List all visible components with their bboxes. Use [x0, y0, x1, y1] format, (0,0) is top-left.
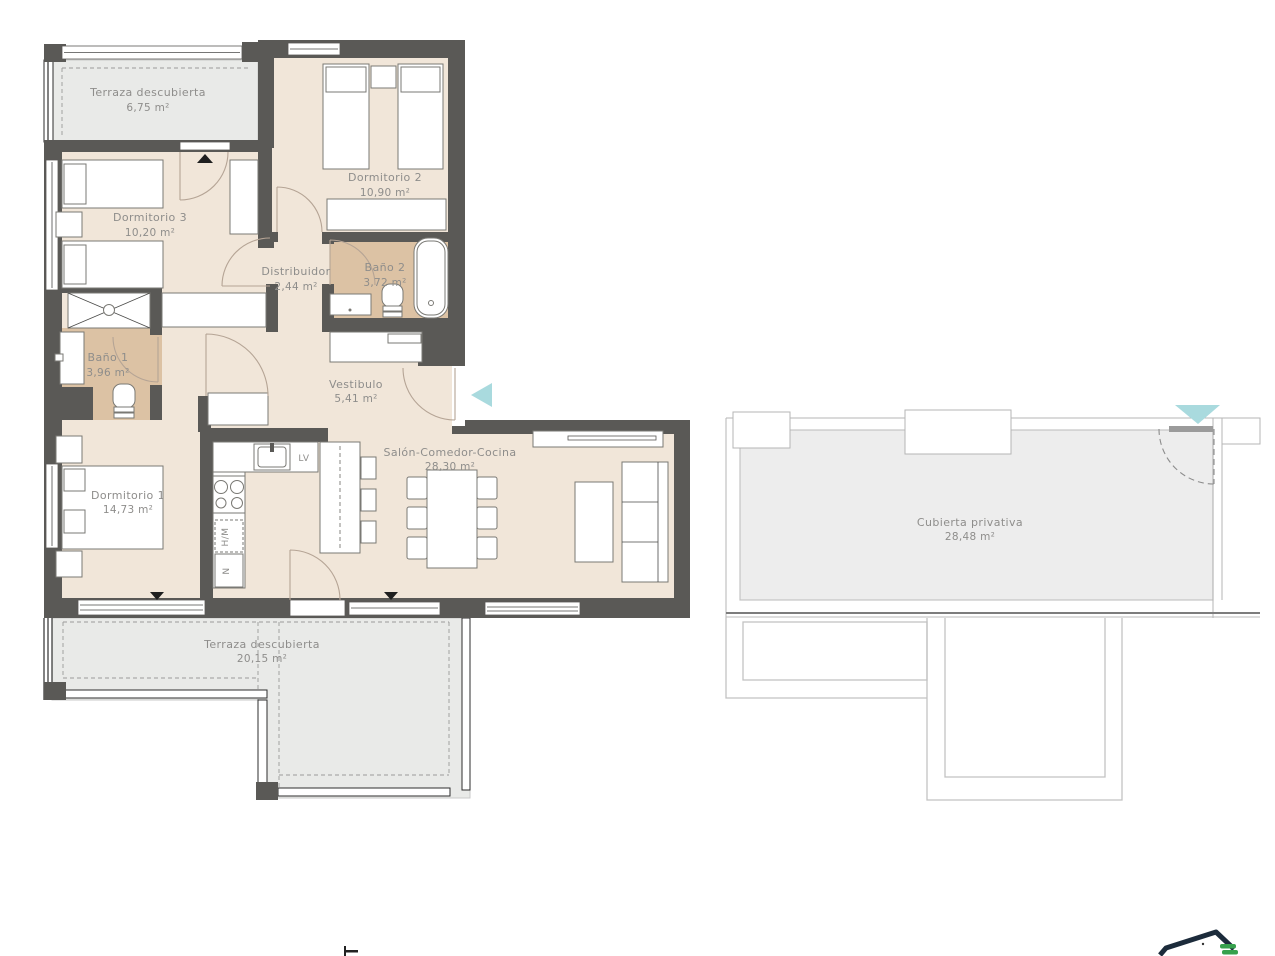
wall-dorm3-jamb-a	[266, 232, 278, 242]
wardrobe-row	[162, 293, 266, 327]
roof-outline-rect-a	[743, 622, 927, 680]
room-label-bano-2: Baño 2	[365, 261, 406, 274]
logo-green-bar-icon	[1222, 950, 1238, 955]
stool	[361, 457, 376, 479]
pillow	[64, 510, 85, 533]
pillow	[64, 245, 86, 284]
faucet-icon	[349, 309, 352, 312]
room-area-bano-2: 3,72 m²	[363, 277, 406, 289]
faucet-icon	[55, 354, 63, 361]
logo-green-bar-icon	[1220, 944, 1236, 949]
terrace-lower-railing-h1	[60, 690, 267, 698]
dining-table	[427, 470, 477, 568]
room-label-dormitorio-2: Dormitorio 2	[348, 171, 422, 184]
entrance-opening	[452, 366, 465, 426]
bottom-window-3	[485, 602, 580, 615]
coffee-table	[575, 482, 613, 562]
terrace-lower-railing-v	[258, 700, 267, 790]
room-label-vestibulo: Vestibulo	[329, 378, 383, 391]
wardrobe	[230, 160, 258, 234]
chair	[407, 507, 427, 529]
pillow	[64, 469, 85, 491]
wall-bano1-right-b	[150, 385, 162, 420]
washbasin	[330, 294, 371, 315]
wall-terrace-dorm2	[258, 58, 274, 148]
scale-tick	[344, 946, 346, 956]
oven-microwave-label: H/M	[221, 527, 231, 546]
toilet-tank	[114, 407, 134, 412]
terrace-pier-1	[44, 682, 66, 700]
pillow	[401, 67, 440, 92]
vestibule-closet	[208, 393, 268, 425]
cubierta-privativa: Cubierta privativa 28,48 m²	[726, 405, 1260, 800]
entrance-arrow-icon	[471, 383, 492, 407]
terrace-pier-2	[256, 782, 278, 800]
room-area-bano-1: 3,96 m²	[86, 367, 129, 379]
tv	[568, 436, 656, 440]
room-label-terraza-superior: Terraza descubierta	[89, 86, 206, 99]
wardrobe	[327, 199, 446, 230]
logo-dot-icon	[1202, 943, 1204, 945]
chair	[477, 507, 497, 529]
wall-bano2-bottom	[322, 318, 465, 332]
washbasin	[60, 332, 84, 384]
nightstand	[56, 551, 82, 577]
wall-dorm3-dorm2	[258, 148, 272, 232]
wall-kitchen-top	[213, 428, 328, 442]
dishwasher-label: LV	[298, 454, 310, 464]
nightstand	[371, 66, 396, 88]
wall-salon-right	[674, 420, 690, 618]
shower-drain	[104, 305, 115, 316]
pillow	[64, 164, 86, 204]
toilet-tank	[383, 312, 402, 317]
wall-kitchen-left	[200, 428, 213, 600]
bottom-window-1	[78, 600, 205, 615]
toilet-bowl	[113, 384, 135, 408]
faucet-icon	[270, 443, 274, 452]
cubierta-right-notch	[1222, 418, 1260, 444]
terrace-lower-railing-right	[462, 618, 470, 790]
bottom-window-2	[349, 602, 440, 615]
room-label-dormitorio-3: Dormitorio 3	[113, 211, 187, 224]
chair	[407, 477, 427, 499]
room-area-dormitorio-3: 10,20 m²	[125, 227, 175, 239]
sofa	[622, 462, 668, 582]
chair	[477, 537, 497, 559]
dorm3-terrace-slider	[180, 142, 230, 150]
logo	[1160, 932, 1238, 955]
fridge-label: N	[222, 567, 232, 574]
room-area-terraza-superior: 6,75 m²	[126, 102, 169, 114]
room-area-cubierta: 28,48 m²	[945, 531, 995, 543]
room-label-salon: Salón-Comedor-Cocina	[383, 446, 516, 459]
floor-plan: LV H/M N Terraza desc	[0, 0, 1275, 956]
room-label-bano-1: Baño 1	[88, 351, 129, 364]
pillow	[326, 67, 366, 92]
scale-bar	[346, 950, 358, 953]
wall-dorm2-bano2	[322, 232, 465, 242]
wall-bano1-right-a	[150, 282, 162, 335]
cubierta-notch-2	[905, 410, 1011, 454]
cubierta-floor	[740, 430, 1213, 600]
chair	[477, 477, 497, 499]
room-area-distribuidor: 2,44 m²	[274, 281, 317, 293]
room-area-vestibulo: 5,41 m²	[334, 393, 377, 405]
stool	[361, 521, 376, 543]
nightstand	[56, 436, 82, 463]
closet	[330, 332, 422, 362]
wall-closet-block	[422, 332, 465, 364]
wall-bano2-jamb-top	[322, 232, 334, 244]
cubierta-threshold	[1169, 426, 1213, 432]
cubierta-notch-1	[733, 412, 790, 448]
terrace-door-opening	[290, 600, 345, 616]
nightstand	[56, 212, 82, 237]
room-label-distribuidor: Distribuidor	[261, 265, 330, 278]
room-area-salon: 28,30 m²	[425, 461, 475, 473]
wall-right-upper	[448, 40, 465, 332]
wall-terrace-end	[242, 42, 260, 62]
stool	[361, 489, 376, 511]
chair	[407, 537, 427, 559]
room-label-cubierta: Cubierta privativa	[917, 516, 1023, 529]
room-area-terraza-inferior: 20,15 m²	[237, 653, 287, 665]
wall-bano1-block	[53, 387, 93, 420]
toilet-tank	[383, 306, 402, 311]
toilet-tank	[114, 413, 134, 418]
roof-outline-contour	[726, 618, 1122, 800]
scale-mark	[344, 946, 358, 956]
room-label-dormitorio-1: Dormitorio 1	[91, 489, 165, 502]
terrace-lower-railing-h2	[278, 788, 450, 796]
room-area-dormitorio-1: 14,73 m²	[103, 504, 153, 516]
room-label-terraza-inferior: Terraza descubierta	[203, 638, 320, 651]
room-area-dormitorio-2: 10,90 m²	[360, 187, 410, 199]
